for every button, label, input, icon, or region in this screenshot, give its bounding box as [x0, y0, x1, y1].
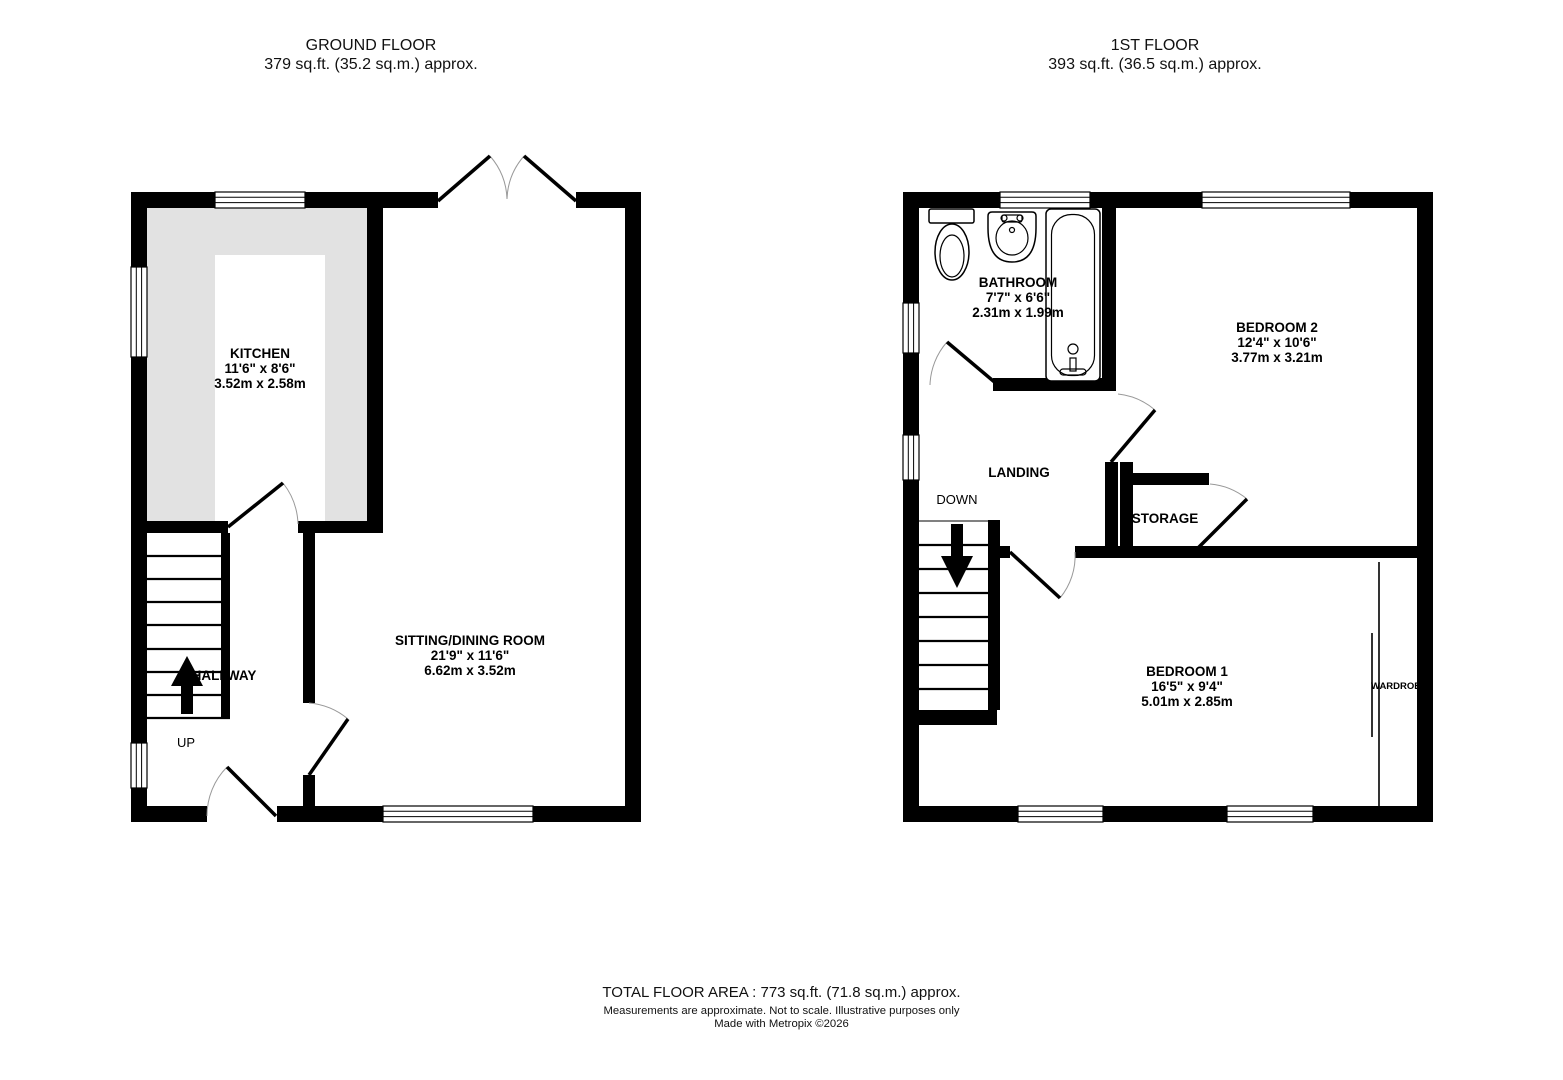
bathroom-top-window [1000, 192, 1090, 208]
landing-label: LANDING [988, 465, 1050, 480]
bathroom-door [930, 342, 998, 385]
hallway-side-window [131, 743, 147, 788]
kitchen-label: KITCHEN [230, 346, 290, 361]
floorplan-canvas: GROUND FLOOR 379 sq.ft. (35.2 sq.m.) app… [0, 0, 1563, 1080]
bedroom2-dim-imperial: 12'4" x 10'6" [1237, 335, 1316, 350]
first-staircase [919, 521, 988, 689]
bedroom2-window [1202, 192, 1350, 208]
bedroom1-dim-metric: 5.01m x 2.85m [1141, 694, 1233, 709]
sitting-dining-label: SITTING/DINING ROOM [395, 633, 545, 648]
kitchen-dim-metric: 3.52m x 2.58m [214, 376, 306, 391]
floorplan-drawing: WARDROBE KITCHEN 11'6" x 8'6" 3.52m x 2.… [0, 0, 1563, 1080]
bedroom2-door [1111, 394, 1155, 462]
bathroom-dim-imperial: 7'7" x 6'6" [986, 290, 1050, 305]
bedroom1-door [1010, 552, 1075, 598]
bedroom1-dim-imperial: 16'5" x 9'4" [1151, 679, 1223, 694]
bathroom-label: BATHROOM [979, 275, 1058, 290]
stairs-down-label: DOWN [936, 492, 977, 507]
toilet-icon [929, 209, 974, 280]
total-floor-area: TOTAL FLOOR AREA : 773 sq.ft. (71.8 sq.m… [0, 984, 1563, 1001]
sitting-dining-dim-metric: 6.62m x 3.52m [424, 663, 516, 678]
footer-disclaimer: Measurements are approximate. Not to sca… [0, 1005, 1563, 1017]
stairs-up-label: UP [177, 735, 195, 750]
bedroom1-label: BEDROOM 1 [1146, 664, 1228, 679]
bedroom2-dim-metric: 3.77m x 3.21m [1231, 350, 1323, 365]
ground-staircase [147, 533, 230, 718]
kitchen-window [215, 192, 305, 208]
sink-icon [988, 212, 1036, 262]
bedroom1-window-left [1018, 806, 1103, 822]
bedroom2-label: BEDROOM 2 [1236, 320, 1318, 335]
landing-side-window [903, 435, 919, 480]
kitchen-side-window [131, 267, 147, 357]
down-arrow-icon [941, 524, 973, 588]
hallway-label: HALLWAY [192, 668, 257, 683]
ground-floor-plan [131, 156, 641, 822]
footer-credit: Made with Metropix ©2026 [0, 1018, 1563, 1030]
storage-label: STORAGE [1132, 511, 1199, 526]
storage-door [1197, 484, 1247, 549]
wardrobe-label-clip-wall [1417, 550, 1433, 820]
up-arrow-icon [171, 656, 203, 714]
sitting-room-door [309, 703, 348, 775]
bathtub-icon [1046, 209, 1100, 381]
sitting-room-window [383, 806, 533, 822]
bathroom-side-window [903, 303, 919, 353]
bedroom1-window-right [1227, 806, 1313, 822]
kitchen-dim-imperial: 11'6" x 8'6" [224, 361, 295, 376]
sitting-dining-dim-imperial: 21'9" x 11'6" [431, 648, 510, 663]
bathroom-dim-metric: 2.31m x 1.99m [972, 305, 1064, 320]
